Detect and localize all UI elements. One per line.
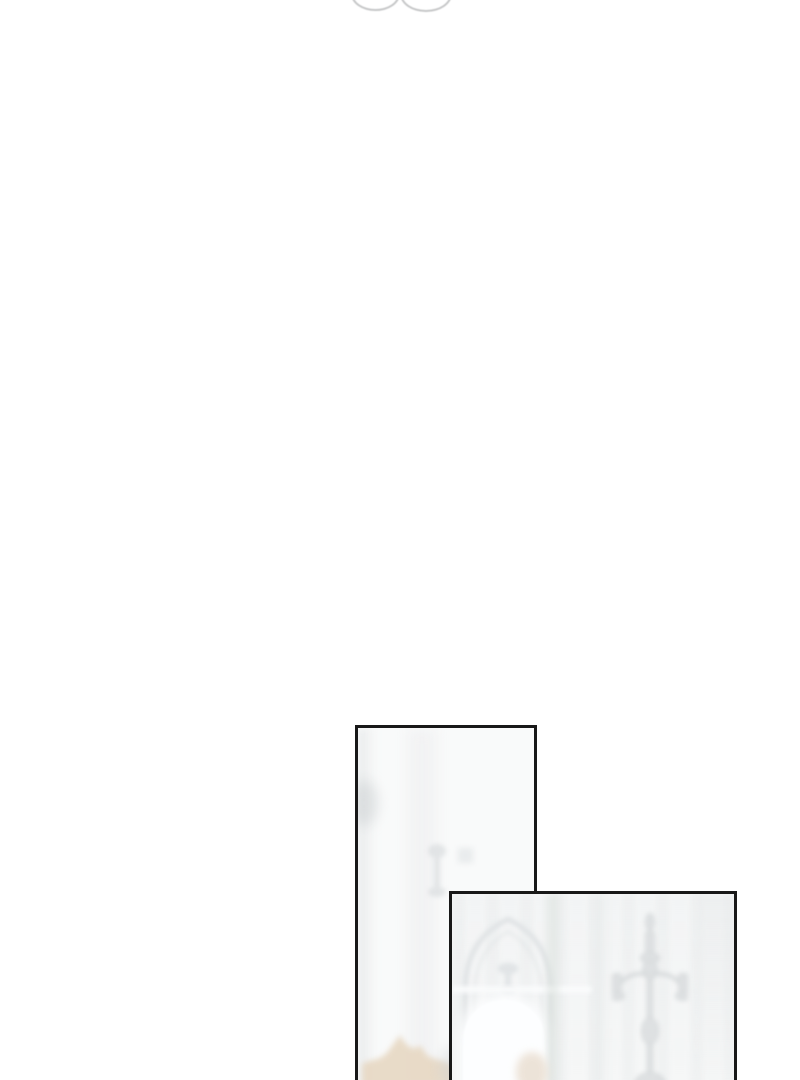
comic-panel-2 <box>449 891 737 1080</box>
faint-goblet <box>424 842 450 906</box>
wall-molding-line <box>452 986 592 993</box>
cutoff-bubble-arc-right <box>400 0 452 12</box>
cutoff-bubble-arc-left <box>351 0 400 11</box>
right-wall-wash <box>698 894 736 1080</box>
faint-wall-detail <box>458 848 473 863</box>
panel-2-artwork <box>452 894 734 1080</box>
pilaster-band <box>546 894 559 1080</box>
comic-page <box>0 0 800 1080</box>
wall-seam-band <box>596 894 605 1080</box>
candelabra <box>612 910 688 1080</box>
